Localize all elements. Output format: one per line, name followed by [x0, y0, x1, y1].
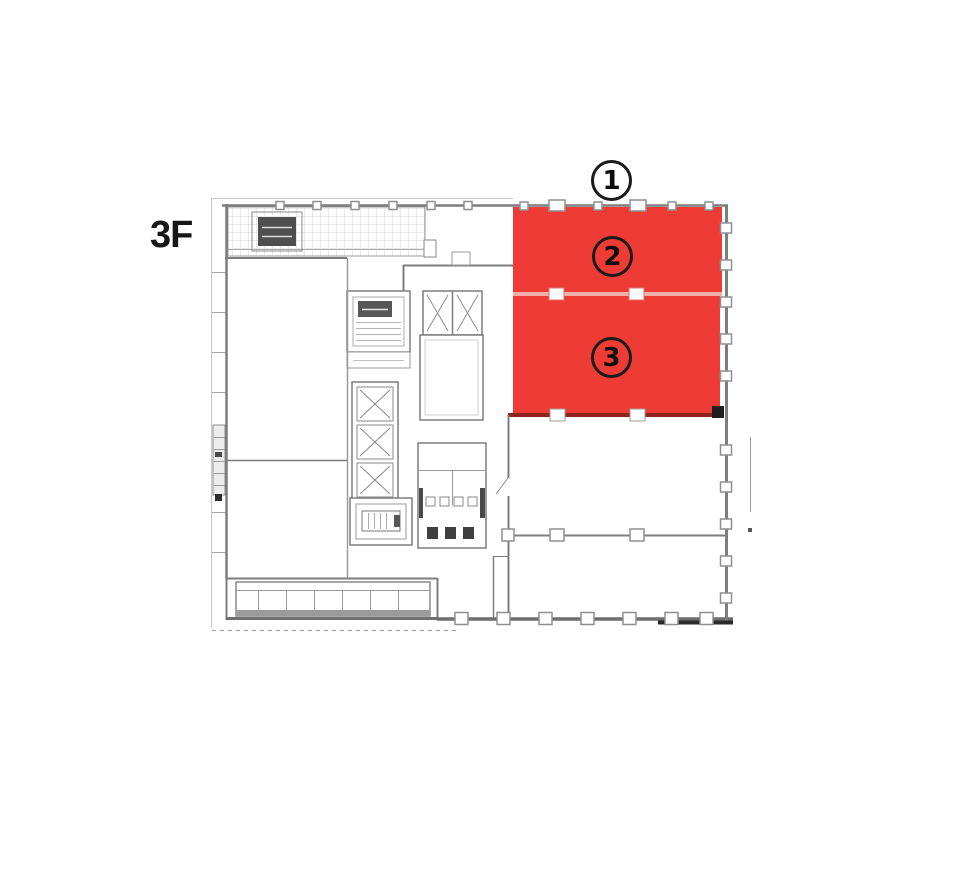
- unit-1-marker: 1: [591, 160, 632, 201]
- machine-room: [228, 207, 436, 257]
- left-balcony: [212, 273, 226, 553]
- floor-plan-image: 3F 1 2 3: [0, 0, 980, 889]
- unit-2-marker: 2: [592, 236, 633, 277]
- stairwell-upper: [347, 291, 410, 368]
- floor-label: 3F: [150, 214, 192, 257]
- stairwell-lower: [350, 498, 412, 545]
- shaft: [420, 335, 483, 420]
- floor-plan-drawing: [0, 0, 980, 889]
- elevator-bank: [352, 382, 398, 504]
- elevator-pair: [423, 291, 482, 335]
- unit-divider: [513, 292, 722, 296]
- bottom-balcony: [236, 582, 430, 616]
- unit-3-marker: 3: [591, 337, 632, 378]
- core-area: [347, 291, 486, 548]
- restroom: [418, 443, 486, 548]
- dimension-marks: [748, 437, 752, 532]
- door-swing: [496, 478, 511, 496]
